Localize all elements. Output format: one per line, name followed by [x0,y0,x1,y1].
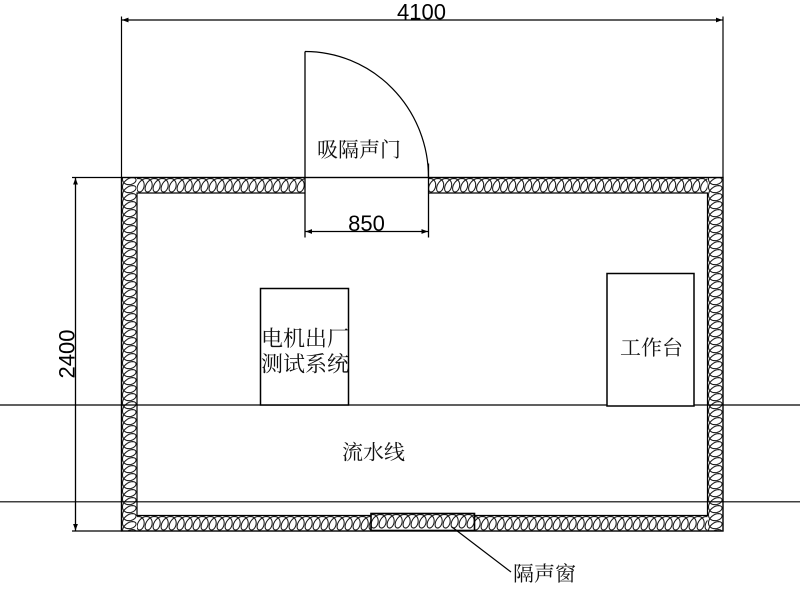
svg-text:2400: 2400 [55,330,80,379]
svg-text:850: 850 [348,211,385,236]
svg-text:4100: 4100 [397,0,446,25]
